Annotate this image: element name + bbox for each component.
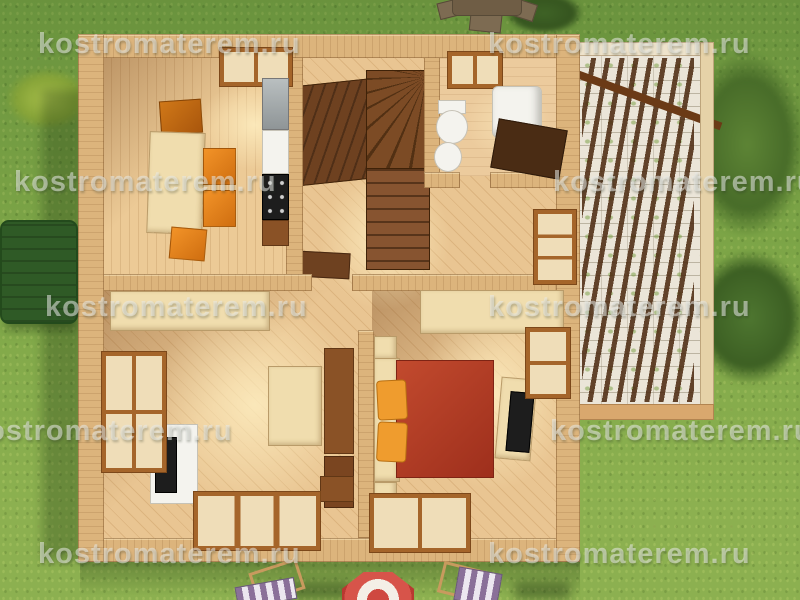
pergola-beam-right	[700, 42, 714, 420]
pergola-beam-bottom	[576, 404, 714, 420]
nightstand-top	[374, 336, 397, 360]
dining-chair-top	[159, 99, 203, 136]
stove	[262, 174, 289, 220]
wall-outer-bottom	[78, 538, 580, 562]
kitchen-counter	[262, 130, 289, 174]
dining-chair-bottom	[169, 226, 208, 261]
sofa-side	[268, 366, 322, 446]
wall-mid-right	[352, 274, 558, 291]
wall-outer-left	[78, 34, 104, 562]
dining-chair-right-1	[203, 148, 236, 185]
pillow-bottom	[376, 421, 408, 463]
wall-bathroom-bottom-a	[424, 172, 460, 188]
bathroom-window	[448, 52, 502, 88]
fridge	[262, 78, 289, 130]
living-cabinet	[324, 348, 354, 454]
green-garden-box	[0, 220, 78, 324]
living-window-bottom	[194, 492, 320, 550]
kitchen-cabinet	[262, 220, 289, 246]
toilet-bowl	[436, 110, 468, 144]
hall-window-right	[534, 210, 576, 284]
wall-outer-top	[78, 34, 580, 58]
wall-mid-left	[102, 274, 312, 291]
bedroom-window-bottom	[370, 494, 470, 552]
deckchair-shadow-right	[515, 582, 570, 600]
dining-table	[146, 131, 206, 235]
pergola-beam-top	[576, 42, 714, 56]
pillow-top	[376, 379, 408, 421]
staircase-lower-flight	[366, 168, 430, 270]
living-corner-table	[320, 476, 354, 502]
living-window-left	[102, 352, 166, 472]
garden-floorplan-scene: kostromaterem.rukostromaterem.rukostroma…	[0, 0, 800, 600]
bed-blanket	[396, 360, 494, 478]
bedroom-window-right	[526, 328, 570, 398]
garden-table	[452, 0, 522, 16]
bathroom-sink	[434, 142, 462, 172]
sofa-main	[110, 291, 270, 331]
dining-chair-right-2	[203, 190, 236, 227]
